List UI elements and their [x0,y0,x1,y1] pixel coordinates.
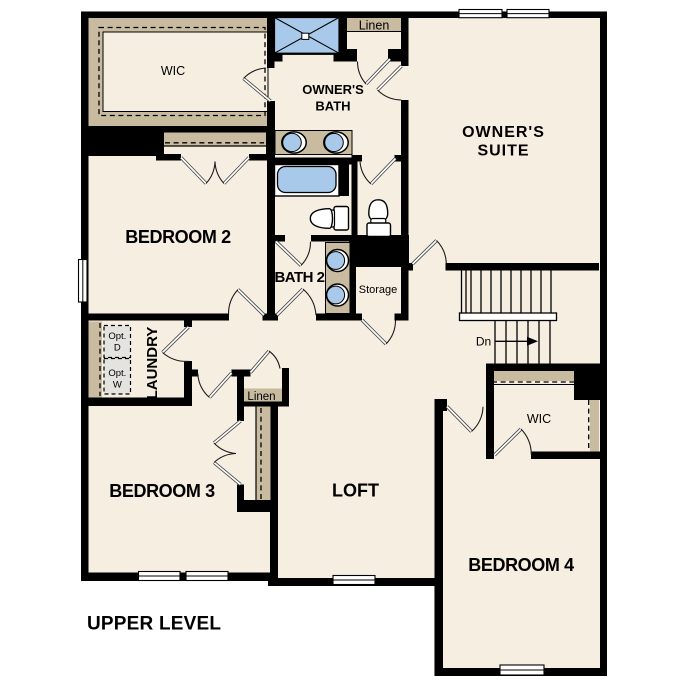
svg-text:Linen: Linen [247,391,275,403]
svg-text:Linen: Linen [359,19,390,33]
svg-text:WIC: WIC [161,64,185,78]
svg-text:OWNER'S: OWNER'S [462,124,545,141]
svg-text:BEDROOM 4: BEDROOM 4 [468,555,574,575]
svg-text:SUITE: SUITE [477,143,529,160]
svg-text:BATH: BATH [315,98,350,113]
svg-text:Opt.: Opt. [108,331,126,342]
svg-text:BATH 2: BATH 2 [274,269,324,286]
svg-text:BEDROOM 2: BEDROOM 2 [125,227,231,247]
svg-text:Dn: Dn [476,335,491,349]
svg-text:D: D [114,343,121,354]
svg-text:W: W [113,380,122,391]
svg-text:Opt.: Opt. [108,368,126,379]
svg-text:LOFT: LOFT [332,481,379,501]
svg-text:LAUNDRY: LAUNDRY [144,327,161,400]
svg-text:Storage: Storage [359,284,398,296]
svg-text:BEDROOM 3: BEDROOM 3 [109,481,215,501]
svg-text:WIC: WIC [527,412,551,426]
svg-text:UPPER LEVEL: UPPER LEVEL [87,614,221,635]
svg-text:OWNER'S: OWNER'S [302,82,364,97]
